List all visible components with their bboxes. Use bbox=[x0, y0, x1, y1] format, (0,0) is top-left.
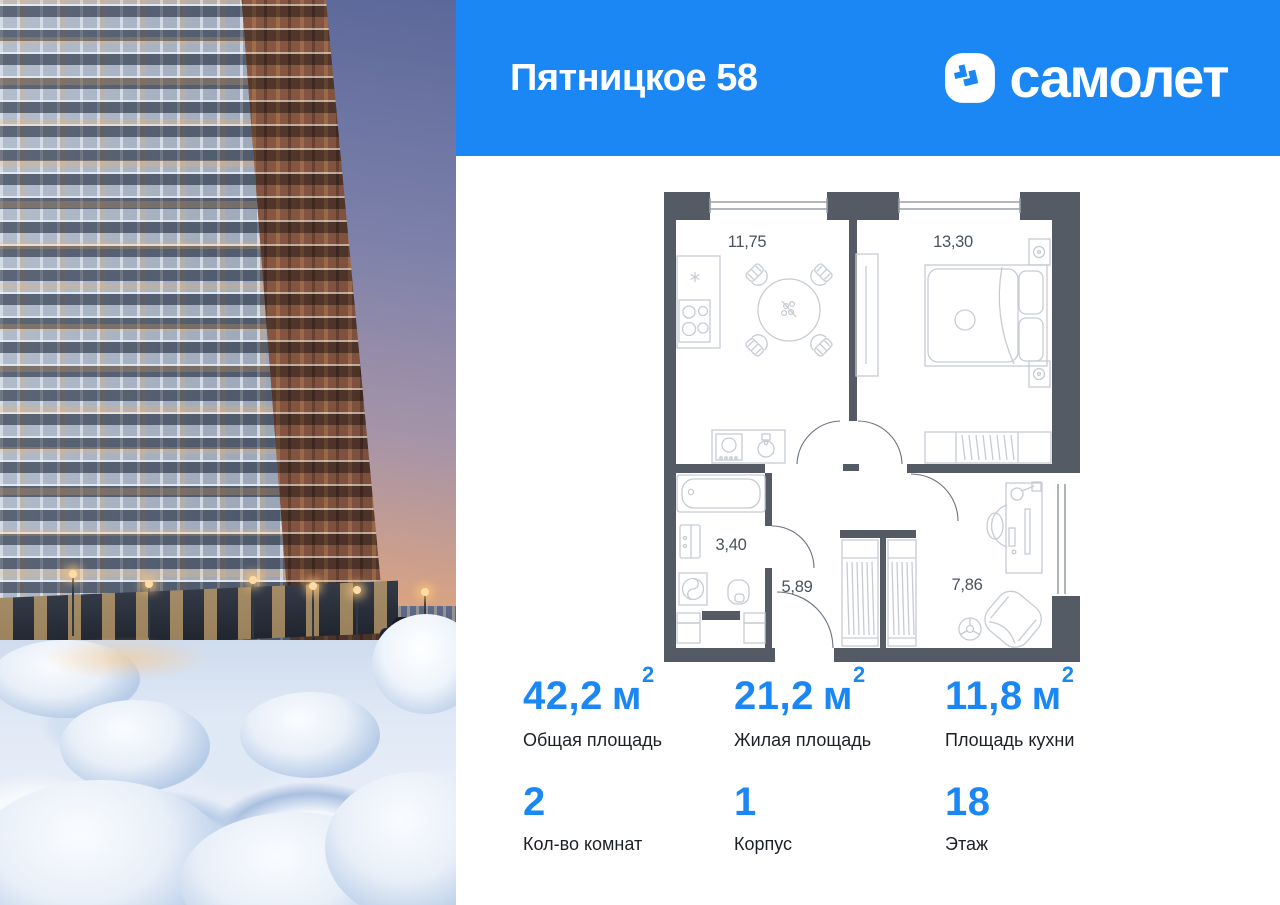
room-area-label: 11,75 bbox=[728, 233, 767, 251]
furniture bbox=[677, 239, 1051, 653]
listing-card: Пятницкое 58 самолет bbox=[456, 0, 1280, 905]
stat-value: 42,2м2 bbox=[523, 676, 734, 716]
stat-value: 18 bbox=[945, 782, 1156, 822]
street-lamp bbox=[356, 592, 358, 638]
stat-label: Корпус bbox=[734, 834, 945, 855]
stat-kitchen-area: 11,8м2 Площадь кухни bbox=[945, 676, 1156, 751]
stat-rooms-count: 2 Кол-во комнат bbox=[523, 782, 734, 855]
brand-name: самолет bbox=[1009, 50, 1228, 106]
stat-building: 1 Корпус bbox=[734, 782, 945, 855]
stat-label: Площадь кухни bbox=[945, 730, 1156, 751]
stat-value: 2 bbox=[523, 782, 734, 822]
stat-label: Кол-во комнат bbox=[523, 834, 734, 855]
walls bbox=[664, 192, 1080, 662]
stats-primary: 42,2м2 Общая площадь 21,2м2 Жилая площад… bbox=[523, 676, 1156, 751]
room-area-label: 3,40 bbox=[716, 536, 747, 554]
room-area-label: 5,89 bbox=[782, 578, 813, 596]
stat-value: 11,8м2 bbox=[945, 676, 1156, 716]
room-area-label: 13,30 bbox=[933, 233, 973, 251]
street-lamp bbox=[312, 588, 314, 638]
room-area-label: 7,86 bbox=[952, 576, 983, 594]
header-bar: Пятницкое 58 самолет bbox=[456, 0, 1280, 156]
street-lamp bbox=[72, 576, 74, 636]
stat-label: Жилая площадь bbox=[734, 730, 945, 751]
stat-label: Этаж bbox=[945, 834, 1156, 855]
stat-total-area: 42,2м2 Общая площадь bbox=[523, 676, 734, 751]
stat-value: 21,2м2 bbox=[734, 676, 945, 716]
stat-living-area: 21,2м2 Жилая площадь bbox=[734, 676, 945, 751]
building-photo bbox=[0, 0, 456, 905]
stat-label: Общая площадь bbox=[523, 730, 734, 751]
stat-floor: 18 Этаж bbox=[945, 782, 1156, 855]
stats-secondary: 2 Кол-во комнат 1 Корпус 18 Этаж bbox=[523, 782, 1156, 855]
samolet-plane-icon bbox=[944, 52, 996, 104]
lamp-glow bbox=[40, 636, 210, 680]
street-lamp bbox=[252, 582, 254, 638]
snow-bush bbox=[240, 692, 380, 778]
floor-plan: 11,75 13,30 3,40 5,89 7,86 bbox=[662, 192, 1082, 664]
project-title: Пятницкое 58 bbox=[510, 57, 757, 100]
samolet-logo: самолет bbox=[944, 50, 1228, 106]
stat-value: 1 bbox=[734, 782, 945, 822]
street-lamp bbox=[148, 586, 150, 638]
snow-bush bbox=[60, 700, 210, 792]
